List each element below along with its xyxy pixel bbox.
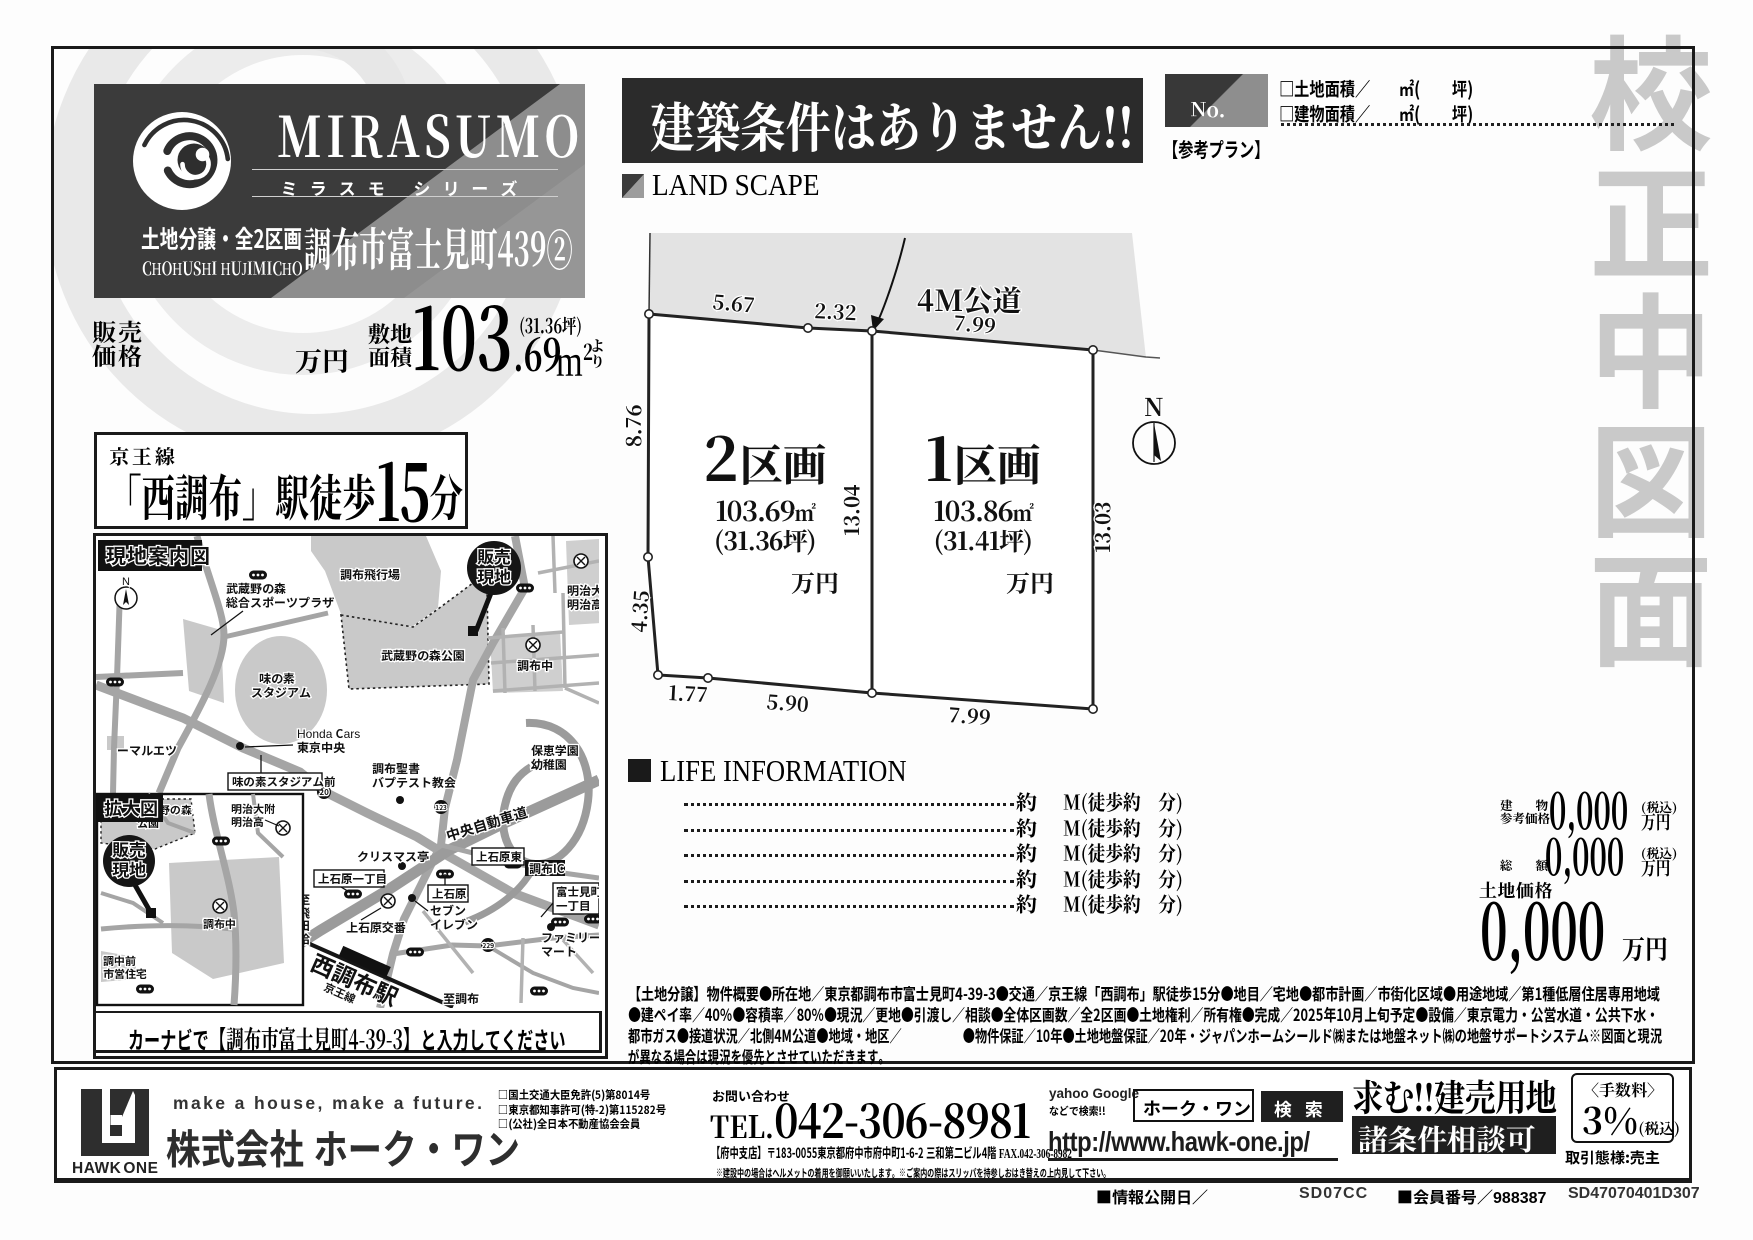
svg-text:N: N — [122, 573, 130, 589]
svg-text:調布飛行場: 調布飛行場 — [340, 566, 400, 583]
svg-text:明治高: 明治高 — [231, 814, 264, 830]
svg-text:市営住宅: 市営住宅 — [103, 966, 147, 982]
svg-text:現地案内図: 現地案内図 — [106, 540, 211, 569]
svg-text:229: 229 — [481, 940, 494, 950]
svg-text:現地: 現地 — [477, 563, 511, 588]
svg-text:至調布: 至調布 — [443, 990, 479, 1007]
svg-text:7.99: 7.99 — [948, 699, 992, 731]
svg-text:拡大図: 拡大図 — [104, 795, 158, 821]
svg-text:4.35: 4.35 — [623, 589, 655, 633]
svg-text:7.99: 7.99 — [952, 307, 997, 340]
svg-text:8.76: 8.76 — [620, 405, 647, 447]
svg-text:調布中: 調布中 — [203, 916, 236, 932]
svg-text:スタジアム: スタジアム — [251, 684, 311, 701]
svg-text:上石原東: 上石原東 — [476, 849, 522, 865]
svg-text:総合スポーツプラザ: 総合スポーツプラザ — [226, 594, 334, 611]
svg-text:5.90: 5.90 — [766, 686, 810, 718]
svg-text:N: N — [1144, 388, 1164, 423]
svg-text:一丁目: 一丁目 — [556, 898, 591, 914]
svg-text:13.03: 13.03 — [1087, 501, 1116, 553]
svg-text:明治高: 明治高 — [567, 596, 599, 613]
svg-text:5.67: 5.67 — [711, 286, 756, 319]
svg-text:イレブン: イレブン — [430, 916, 478, 933]
svg-text:バプテスト教会: バプテスト教会 — [372, 774, 456, 791]
svg-text:1.77: 1.77 — [668, 677, 709, 708]
svg-text:ーマルエツ: ーマルエツ — [117, 742, 177, 759]
svg-text:万円: 万円 — [1006, 564, 1054, 599]
svg-text:調布IC: 調布IC — [529, 860, 565, 877]
svg-text:(31.36坪): (31.36坪) — [714, 522, 816, 558]
svg-text:調布中: 調布中 — [517, 657, 553, 674]
svg-text:中央自動車道: 中央自動車道 — [444, 802, 530, 846]
svg-text:上石原一丁目: 上石原一丁目 — [318, 871, 387, 887]
svg-text:上石原: 上石原 — [432, 886, 467, 902]
svg-text:味の素スタジアム前: 味の素スタジアム前 — [232, 774, 336, 790]
svg-text:マート: マート — [541, 943, 577, 960]
svg-text:2.32: 2.32 — [814, 295, 858, 326]
svg-text:東京中央: 東京中央 — [297, 739, 346, 756]
svg-text:(31.41坪): (31.41坪) — [934, 522, 1032, 558]
svg-text:武蔵野の森公園: 武蔵野の森公園 — [381, 647, 465, 664]
svg-text:123: 123 — [435, 802, 447, 812]
svg-text:万円: 万円 — [791, 564, 839, 599]
svg-text:クリスマス亭: クリスマス亭 — [357, 848, 429, 865]
svg-text:幼稚園: 幼稚園 — [531, 756, 567, 773]
svg-text:現地: 現地 — [112, 856, 146, 881]
svg-text:13.04: 13.04 — [836, 484, 865, 536]
svg-text:上石原交番: 上石原交番 — [346, 919, 407, 936]
